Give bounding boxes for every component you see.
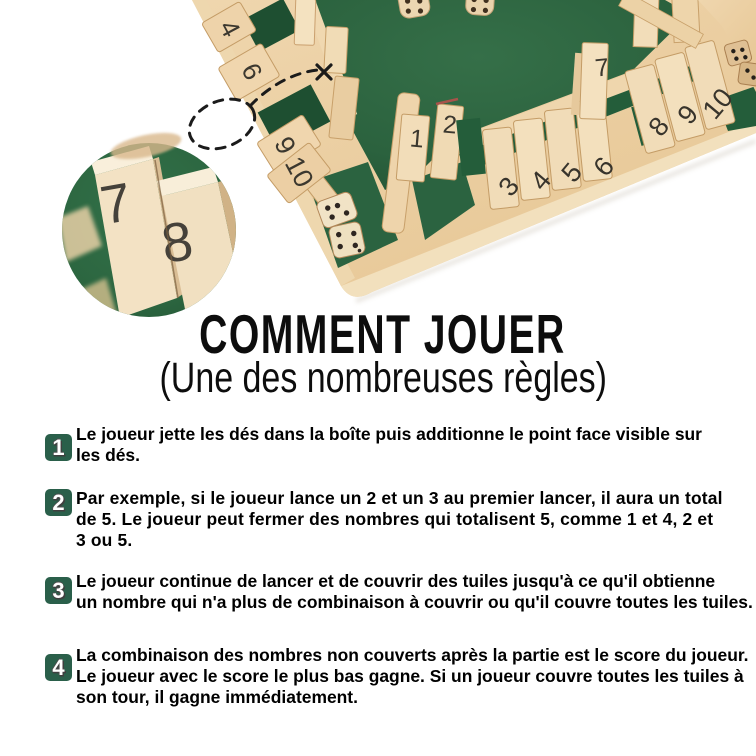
- svg-text:2: 2: [442, 110, 458, 139]
- svg-text:1: 1: [409, 124, 425, 153]
- svg-text:7: 7: [594, 53, 611, 82]
